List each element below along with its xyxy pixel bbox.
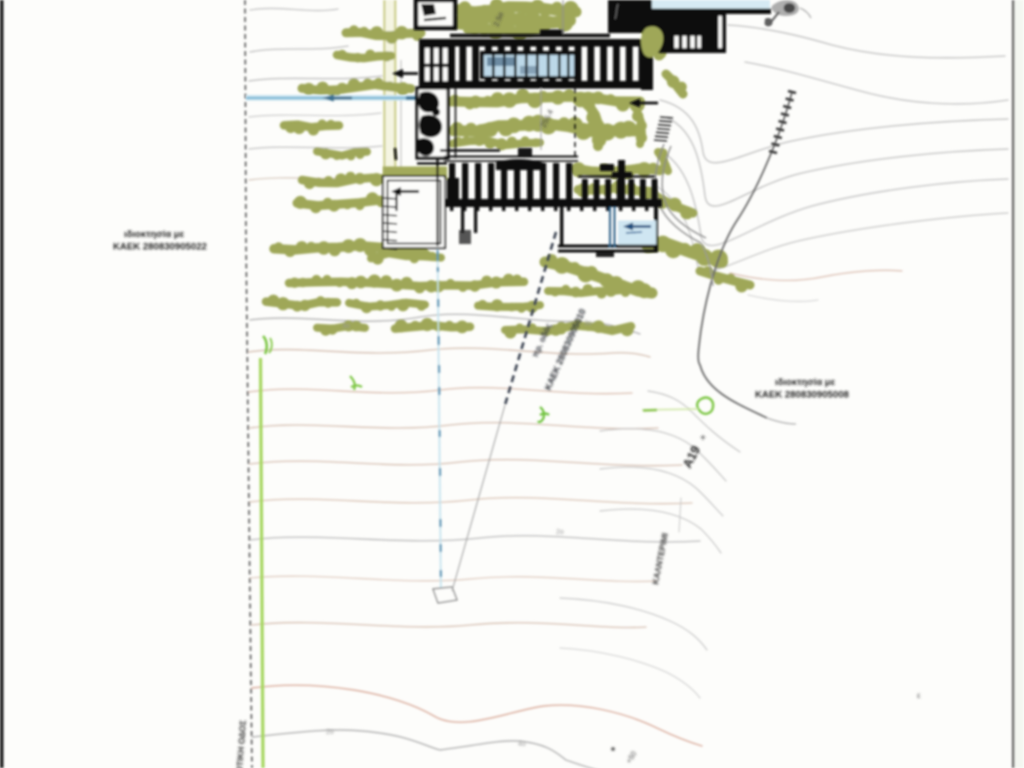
svg-text:ΚΑΕΚ 280830905008: ΚΑΕΚ 280830905008	[755, 390, 850, 401]
svg-text:3o: 3o	[342, 323, 350, 330]
svg-text:ιδιοκτησία με: ιδιοκτησία με	[124, 229, 185, 240]
svg-text:2o: 2o	[326, 729, 334, 736]
svg-text:+: +	[700, 433, 706, 444]
svg-text:ε: ε	[917, 691, 921, 700]
svg-text:2o: 2o	[556, 529, 564, 536]
svg-text:4o: 4o	[518, 741, 526, 748]
svg-text:ΚΑΕΚ 280830905022: ΚΑΕΚ 280830905022	[113, 242, 207, 253]
svg-text:ιδιοκτησία με: ιδιοκτησία με	[775, 377, 836, 388]
svg-text:3o: 3o	[584, 320, 592, 327]
